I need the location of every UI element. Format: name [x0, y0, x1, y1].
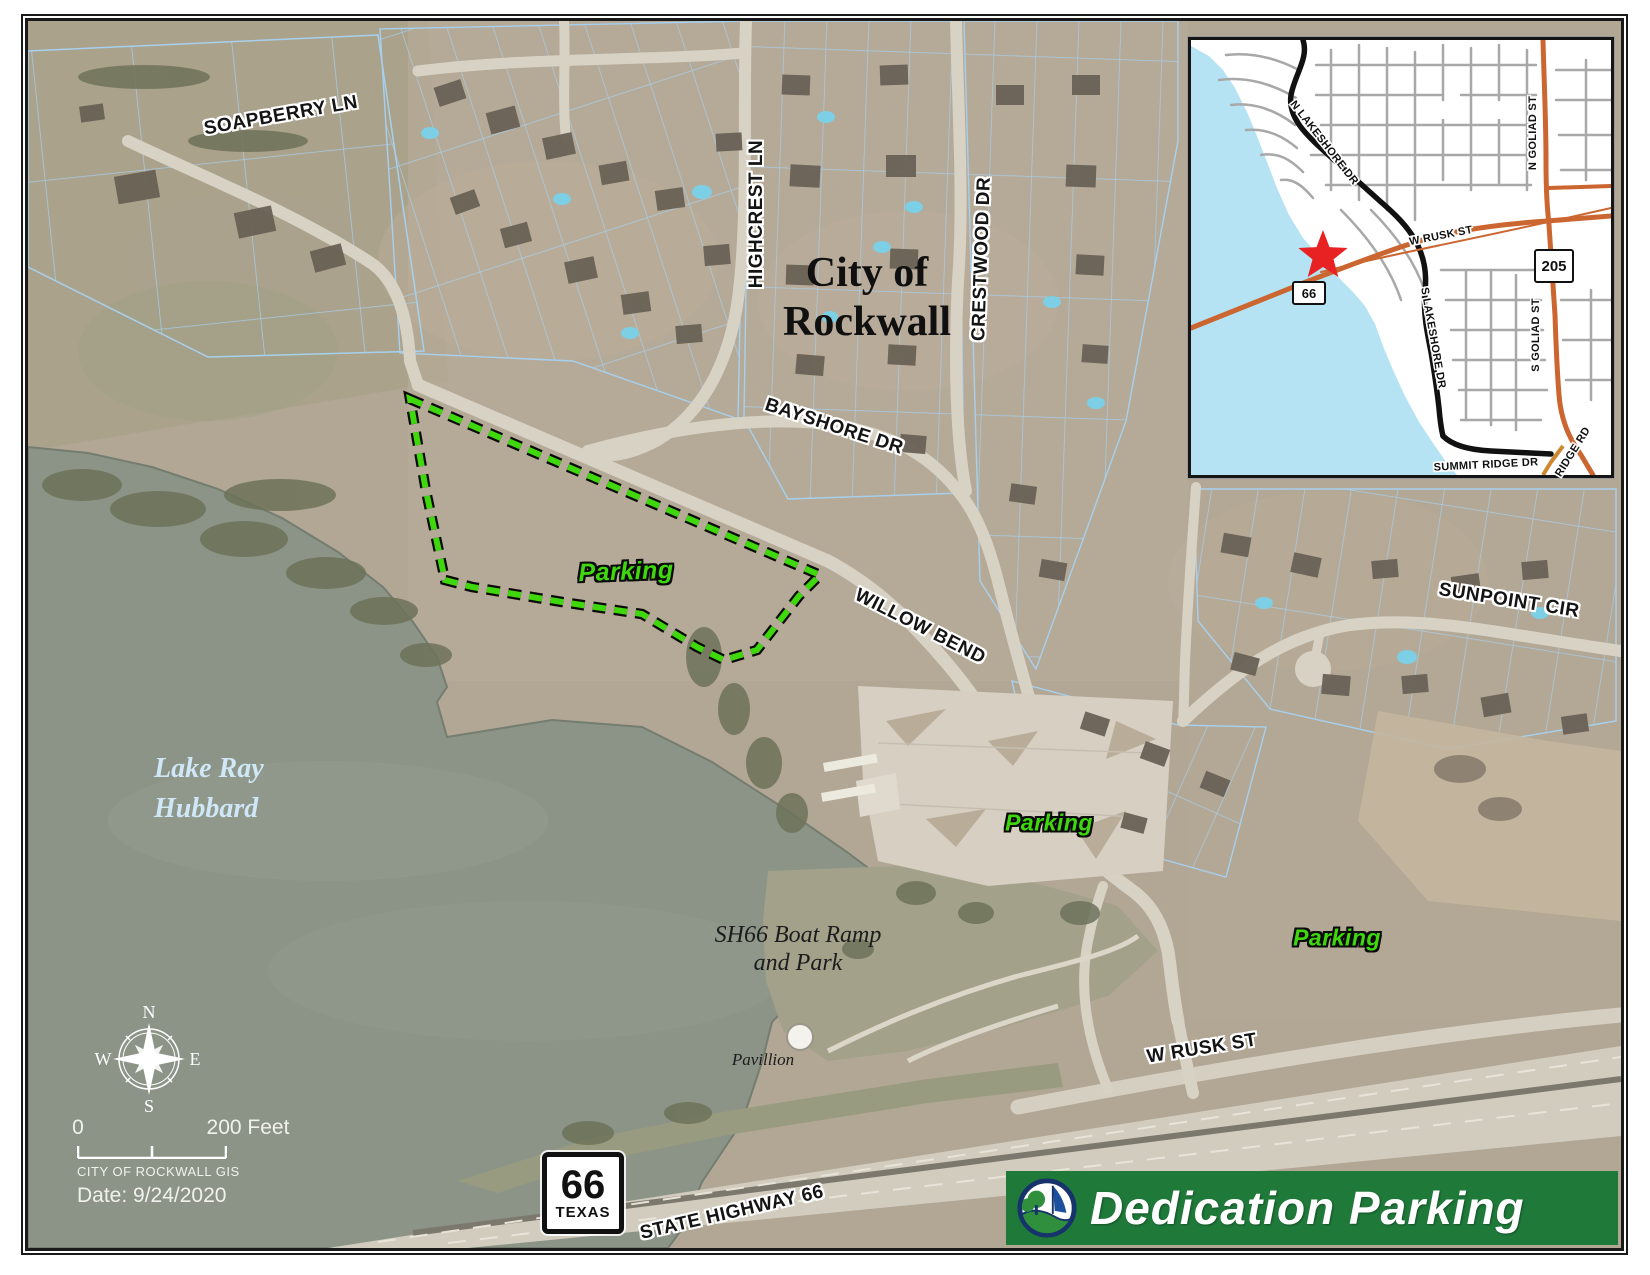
inset-label-n-goliad: N GOLIAD ST [1527, 96, 1539, 170]
pavilion-label: Pavillion [732, 1050, 794, 1070]
city-of-rockwall-logo-icon [1016, 1177, 1078, 1239]
parking-label-3: Parking [1293, 925, 1381, 952]
scale-zero: 0 [72, 1116, 84, 1140]
boat-ramp-label: SH66 Boat Ramp and Park [715, 921, 882, 977]
parking-label-1: Parking [578, 556, 674, 588]
compass-rose: N E S W [94, 1004, 204, 1114]
inset-shield-205: 205 [1534, 249, 1574, 283]
map-page: SOAPBERRY LN HIGHCREST LN CRESTWOOD DR B… [0, 0, 1650, 1275]
banner-title: Dedication Parking [1090, 1181, 1525, 1235]
gis-credit: CITY OF ROCKWALL GIS [77, 1164, 240, 1179]
highway-66-shield: 66 TEXAS [542, 1152, 624, 1234]
compass-e: E [190, 1049, 201, 1069]
title-banner: Dedication Parking [1006, 1171, 1618, 1245]
scale-max: 200 Feet [207, 1116, 290, 1140]
scale-bar [77, 1143, 227, 1159]
lake-name-label: Lake Ray Hubbard [154, 749, 264, 829]
compass-w: W [95, 1049, 112, 1069]
compass-s: S [144, 1096, 154, 1114]
inset-shield-66: 66 [1292, 281, 1326, 305]
aerial-map: SOAPBERRY LN HIGHCREST LN CRESTWOOD DR B… [25, 18, 1624, 1251]
street-label-highcrest: HIGHCREST LN [746, 140, 768, 289]
pavilion-structure [787, 1024, 813, 1050]
city-name-label: City of Rockwall [783, 249, 951, 347]
map-frame: SOAPBERRY LN HIGHCREST LN CRESTWOOD DR B… [21, 14, 1628, 1255]
parking-label-2: Parking [1005, 810, 1093, 837]
compass-n: N [143, 1004, 156, 1022]
inset-locator-map: N LAKESHORE DR W RUSK ST S LAKESHORE DR … [1188, 37, 1614, 478]
inset-label-s-goliad: S GOLIAD ST [1530, 298, 1542, 372]
map-date: Date: 9/24/2020 [77, 1184, 226, 1208]
